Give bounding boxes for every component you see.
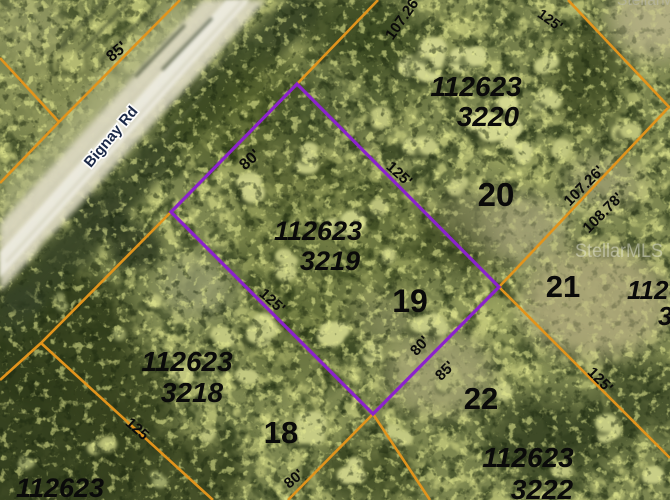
svg-text:3220: 3220: [457, 101, 520, 132]
svg-text:112623: 112623: [16, 473, 104, 500]
svg-text:StellarMLS: StellarMLS: [617, 0, 670, 9]
svg-text:112623: 112623: [430, 71, 522, 102]
svg-text:112623: 112623: [482, 442, 574, 473]
svg-text:112623: 112623: [274, 216, 362, 246]
svg-text:19: 19: [392, 283, 428, 319]
svg-text:3221: 3221: [658, 301, 670, 331]
svg-text:112623: 112623: [141, 346, 233, 377]
svg-text:3219: 3219: [300, 246, 360, 276]
svg-text:20: 20: [478, 176, 515, 213]
svg-text:3218: 3218: [161, 377, 224, 408]
svg-text:3222: 3222: [511, 474, 574, 500]
svg-text:21: 21: [546, 269, 580, 304]
svg-text:22: 22: [464, 381, 498, 416]
svg-text:StellarMLS: StellarMLS: [575, 241, 663, 262]
svg-text:18: 18: [264, 415, 298, 450]
